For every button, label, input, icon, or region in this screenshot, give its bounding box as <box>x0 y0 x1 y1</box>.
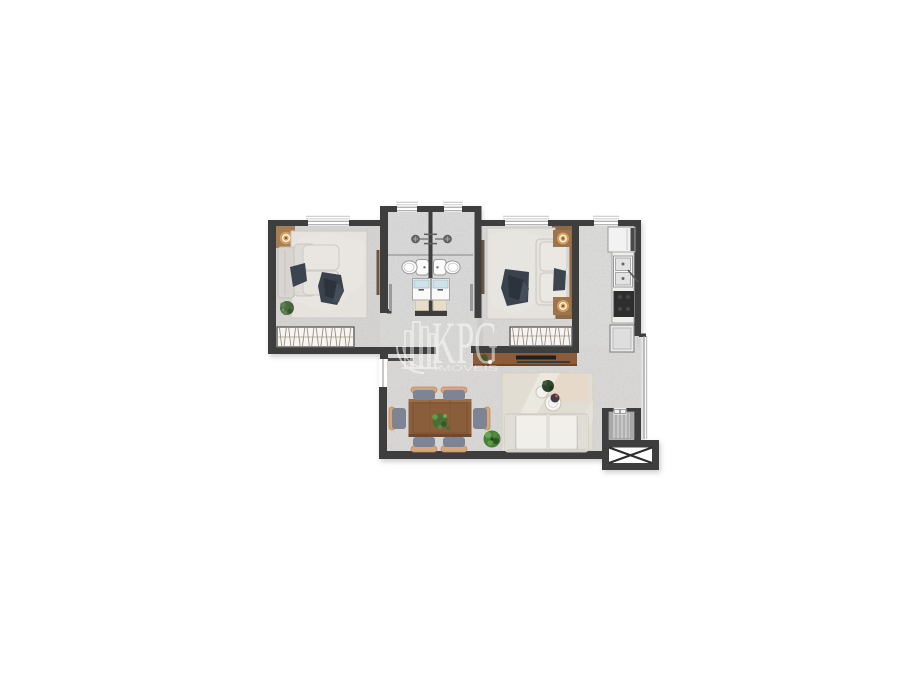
svg-text:IMÓVEIS: IMÓVEIS <box>434 364 498 373</box>
